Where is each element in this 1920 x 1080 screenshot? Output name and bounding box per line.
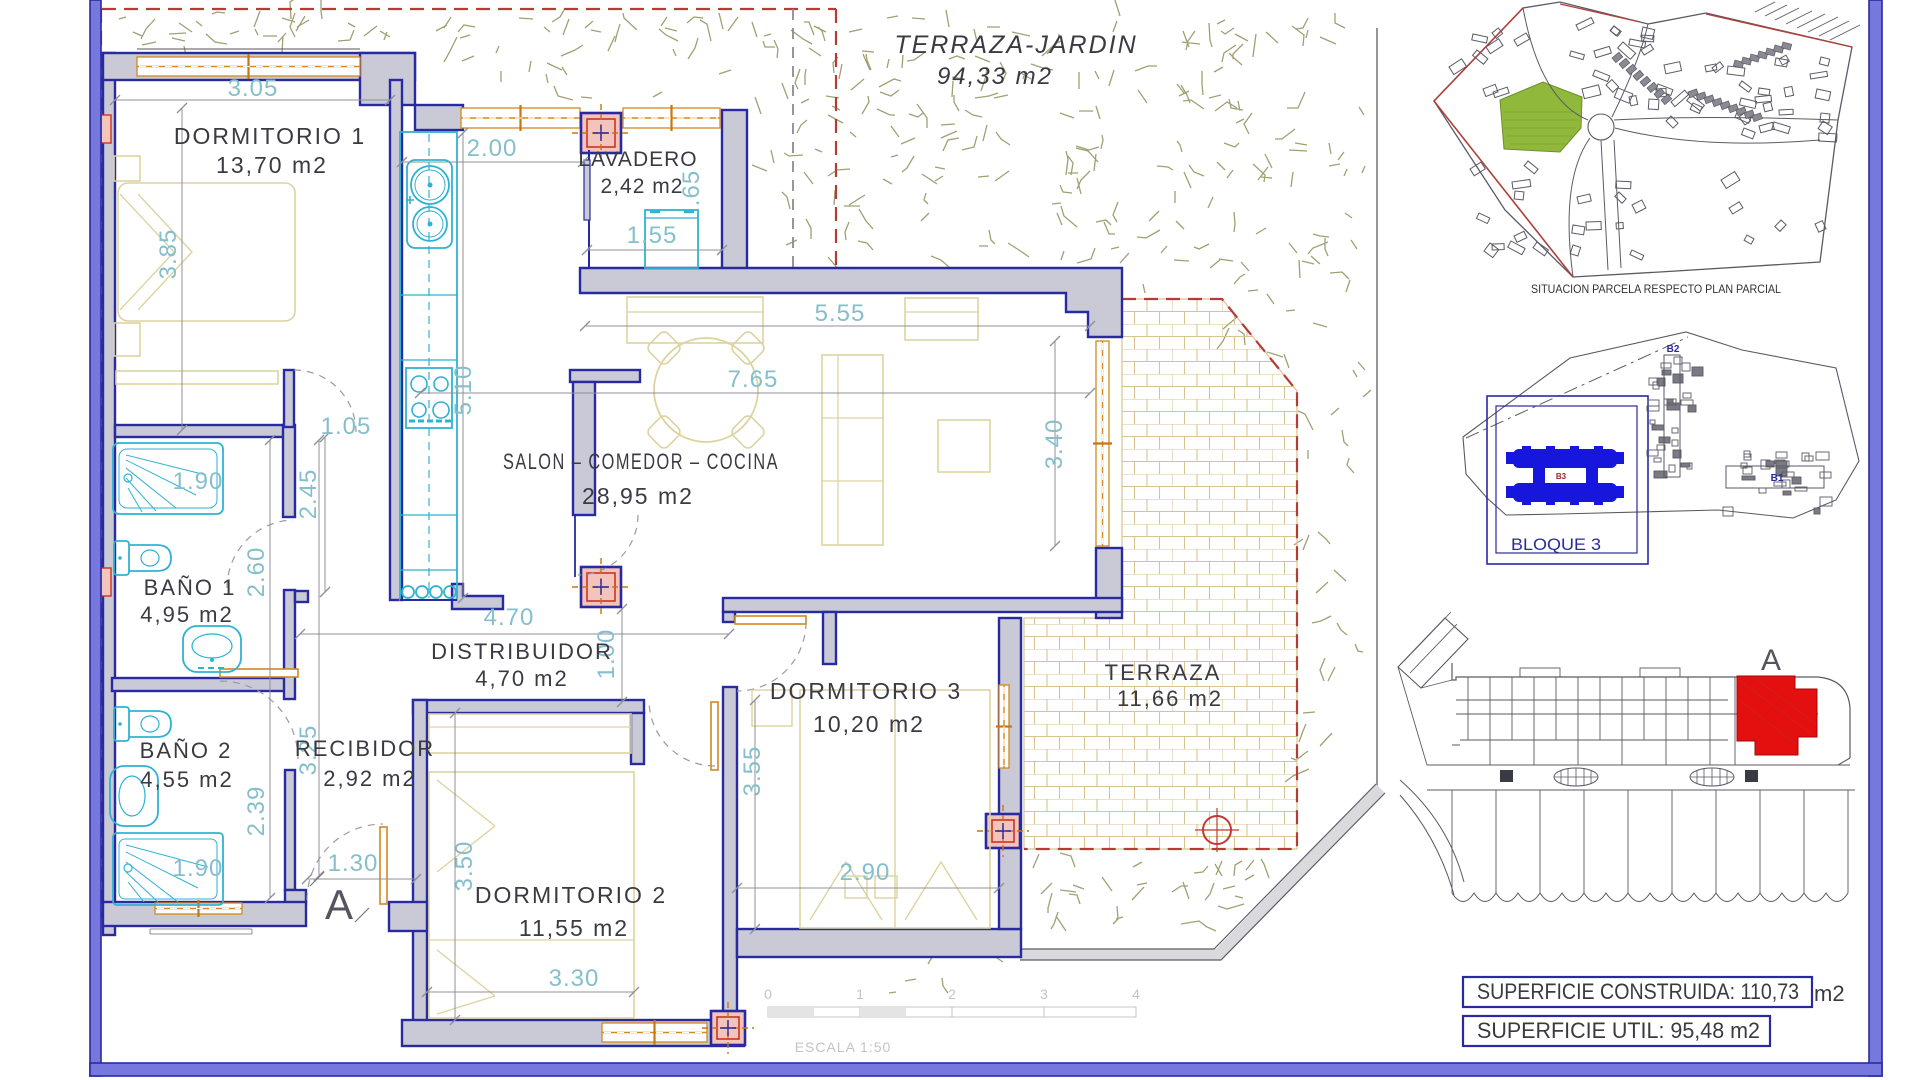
svg-text:RECIBIDOR: RECIBIDOR — [295, 736, 435, 761]
svg-text:3.05: 3.05 — [228, 75, 279, 102]
svg-text:1.90: 1.90 — [173, 855, 224, 882]
svg-text:11,55 m2: 11,55 m2 — [519, 915, 629, 941]
svg-text:1.55: 1.55 — [627, 222, 678, 249]
svg-text:B2: B2 — [1667, 344, 1680, 355]
svg-text:2: 2 — [948, 986, 956, 1002]
svg-text:SITUACION PARCELA RESPECTO: SITUACION PARCELA RESPECTO PLAN PARCIAL — [1531, 282, 1781, 296]
svg-text:A: A — [1761, 644, 1781, 677]
svg-text:94,33 m2: 94,33 m2 — [937, 63, 1053, 90]
svg-text:4,95 m2: 4,95 m2 — [140, 602, 234, 627]
svg-text:DORMITORIO 3: DORMITORIO 3 — [770, 678, 962, 704]
svg-text:BAÑO 2: BAÑO 2 — [140, 738, 233, 763]
svg-text:0: 0 — [764, 986, 772, 1002]
svg-text:1.90: 1.90 — [173, 468, 224, 495]
svg-text:1: 1 — [856, 986, 864, 1002]
svg-text:ESCALA 1:50: ESCALA 1:50 — [795, 1039, 892, 1055]
svg-text:4,70 m2: 4,70 m2 — [475, 666, 569, 691]
svg-text:TERRAZA-JARDIN: TERRAZA-JARDIN — [894, 31, 1137, 59]
svg-text:4: 4 — [1132, 986, 1140, 1002]
svg-text:3.55: 3.55 — [739, 746, 766, 797]
svg-text:1.05: 1.05 — [321, 413, 372, 440]
svg-text:DORMITORIO 1: DORMITORIO 1 — [174, 123, 366, 149]
svg-text:BAÑO 1: BAÑO 1 — [144, 575, 237, 600]
svg-text:SUPERFICIE UTIL: 95,48 m2: SUPERFICIE UTIL: 95,48 m2 — [1477, 1018, 1760, 1043]
svg-text:LAVADERO: LAVADERO — [578, 148, 697, 171]
svg-text:10,20 m2: 10,20 m2 — [813, 711, 925, 737]
svg-text:TERRAZA: TERRAZA — [1105, 660, 1222, 685]
svg-text:5.10: 5.10 — [450, 365, 477, 416]
svg-text:5.55: 5.55 — [815, 300, 866, 327]
svg-text:1.30: 1.30 — [328, 850, 379, 877]
svg-text:B3: B3 — [1556, 472, 1567, 481]
svg-text:13,70 m2: 13,70 m2 — [216, 152, 328, 178]
svg-text:3.40: 3.40 — [1041, 419, 1068, 470]
svg-text:4.70: 4.70 — [484, 604, 535, 631]
svg-text:28,95 m2: 28,95 m2 — [582, 483, 694, 509]
svg-text:DISTRIBUIDOR: DISTRIBUIDOR — [431, 639, 613, 664]
svg-text:2.45: 2.45 — [295, 469, 322, 520]
svg-text:4,55 m2: 4,55 m2 — [140, 767, 234, 792]
svg-text:2.00: 2.00 — [467, 135, 518, 162]
svg-text:A: A — [325, 881, 353, 928]
svg-text:3: 3 — [1040, 986, 1048, 1002]
svg-text:m2: m2 — [1814, 981, 1845, 1006]
svg-text:SUPERFICIE CONSTRUIDA: 110,7: SUPERFICIE CONSTRUIDA: 110,73 — [1477, 979, 1799, 1004]
svg-text:7.65: 7.65 — [728, 366, 779, 393]
svg-text:2.60: 2.60 — [243, 547, 270, 598]
svg-text:2,92 m2: 2,92 m2 — [323, 766, 417, 791]
svg-text:3.85: 3.85 — [155, 229, 182, 280]
svg-text:DORMITORIO 2: DORMITORIO 2 — [475, 882, 667, 908]
svg-text:3.30: 3.30 — [549, 965, 600, 992]
svg-text:2.90: 2.90 — [840, 859, 891, 886]
svg-text:B1: B1 — [1771, 473, 1784, 484]
svg-text:BLOQUE 3: BLOQUE 3 — [1511, 535, 1601, 554]
svg-text:2.39: 2.39 — [243, 786, 270, 837]
svg-text:11,66 m2: 11,66 m2 — [1117, 686, 1223, 711]
svg-text:2,42 m2: 2,42 m2 — [601, 175, 684, 198]
svg-text:SALON – COMEDOR – COCINA: SALON – COMEDOR – COCINA — [503, 449, 779, 474]
